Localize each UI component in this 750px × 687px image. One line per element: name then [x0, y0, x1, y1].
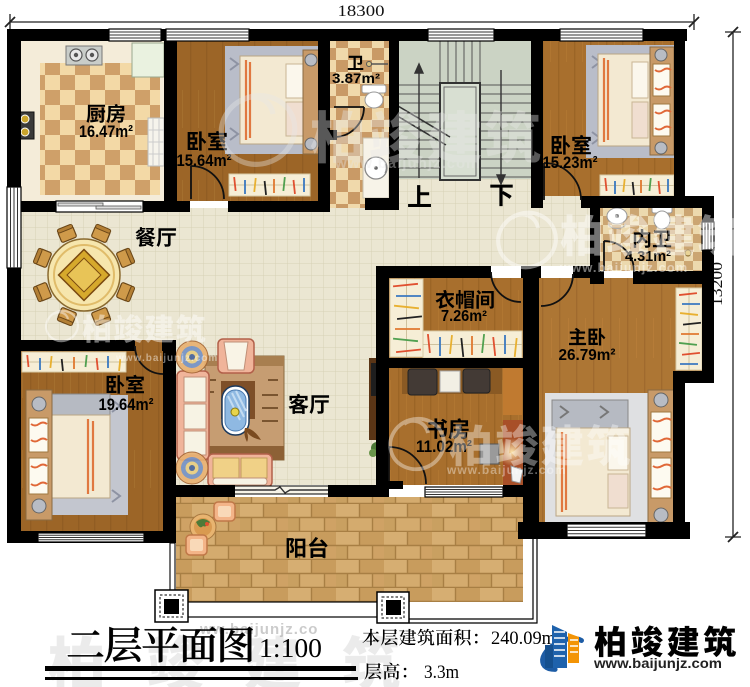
svg-text:3.3m: 3.3m: [424, 662, 459, 683]
svg-text:www.baijunjz.com: www.baijunjz.com: [115, 353, 218, 364]
svg-text:16.47m²: 16.47m²: [79, 123, 133, 141]
svg-text:15.23m²: 15.23m²: [543, 153, 598, 172]
svg-text:7.26m²: 7.26m²: [441, 308, 487, 325]
svg-text:www.baijunjz.com: www.baijunjz.com: [593, 656, 722, 671]
svg-text:www.baijunjz.com: www.baijunjz.com: [446, 463, 567, 477]
svg-text:18300: 18300: [338, 3, 385, 20]
svg-text:19.64m²: 19.64m²: [99, 395, 154, 414]
svg-text:15.64m²: 15.64m²: [177, 151, 232, 170]
svg-text:1:100: 1:100: [259, 633, 322, 663]
svg-text:26.79m²: 26.79m²: [559, 347, 616, 364]
svg-text:www.baijunjz.com: www.baijunjz.com: [559, 260, 688, 275]
svg-text:3.87m²: 3.87m²: [332, 70, 380, 86]
svg-text:www.baijunjz.com: www.baijunjz.com: [334, 155, 480, 172]
